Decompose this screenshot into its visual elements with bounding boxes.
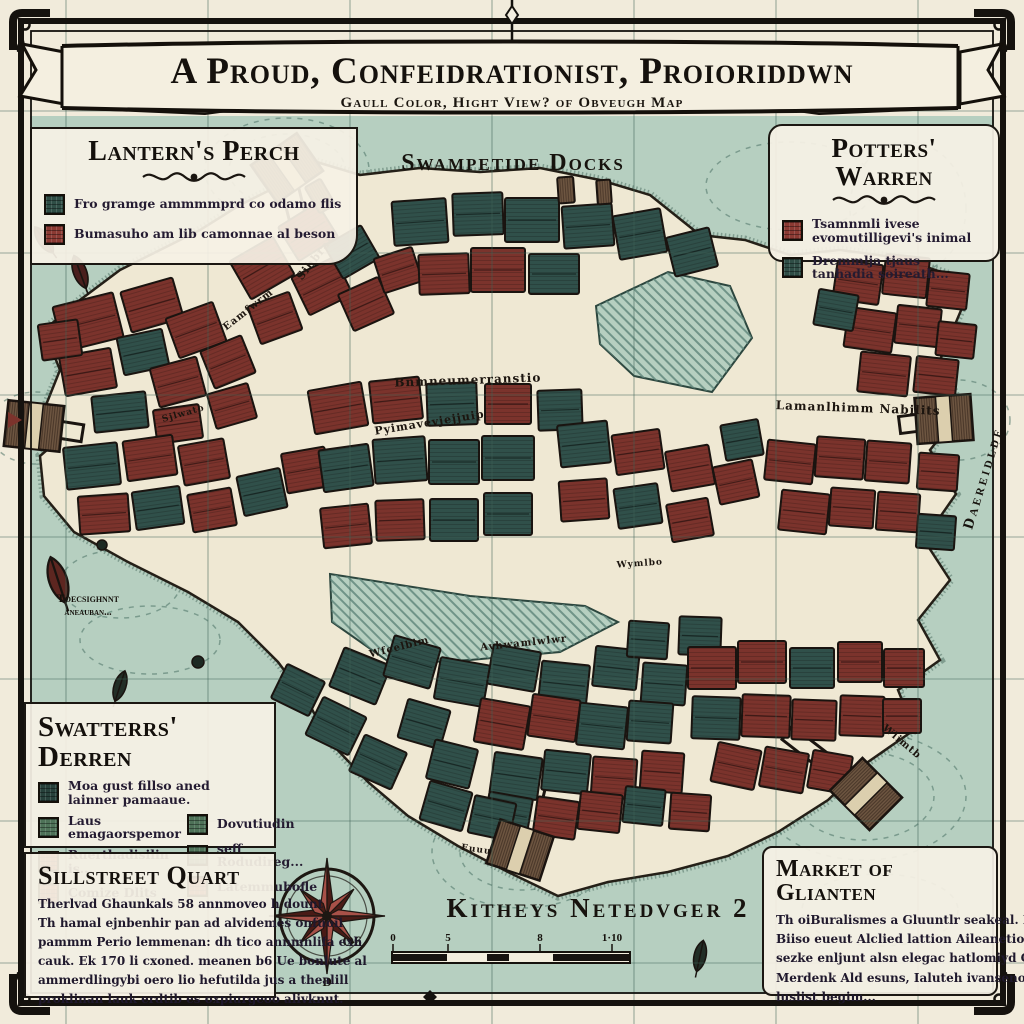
legend-item: Laus emagaorspemor: [38, 814, 181, 842]
legend-swatch-icon: [782, 257, 803, 278]
legend-lanterns-perch: Lantern's Perch Fro gramge ammmmprd co o…: [30, 127, 358, 265]
scroll-ornament-icon: [139, 169, 249, 185]
legend-swatch-icon: [38, 817, 59, 838]
legend-item: Dremmlja tjaus tanhadia soireath...: [782, 254, 986, 282]
note-sillstreet-quart: Sillstreet Quart Therlvad Ghaunkals 58 a…: [24, 852, 276, 998]
legend-item: Dovutiudin: [187, 814, 317, 835]
legend-item: Moa gust fillso aned lainner pamaaue.: [38, 779, 262, 807]
legend-item-label: Dremmlja tjaus tanhadia soireath...: [812, 254, 986, 282]
legend-title: Lantern's Perch: [44, 138, 344, 167]
legend-item: Tsamnmli ivese evomutilligevi's inimal: [782, 217, 986, 245]
legend-swatch-icon: [38, 782, 59, 803]
legend-item-label: Moa gust fillso aned lainner pamaaue.: [68, 779, 262, 807]
legend-swatch-icon: [782, 220, 803, 241]
legend-swatch-icon: [44, 224, 65, 245]
legend-item: Bumasuho am lib camonnae al beson: [44, 224, 344, 245]
legend-title: Potters' Warren: [782, 135, 986, 190]
legend-item-label: Laus emagaorspemor: [68, 814, 181, 842]
note-title: Market of Glianten: [776, 857, 984, 906]
legend-swatch-icon: [44, 194, 65, 215]
legend-item-label: Dovutiudin: [217, 817, 295, 831]
map-subtitle: Gaull Color, Hight View? of Obveugh Map: [70, 95, 954, 112]
note-paragraph: Therlvad Ghaunkals 58 annmoveo h dountTh…: [38, 895, 262, 1010]
note-paragraph: Th oiBuralismes a Gluuntlr seakeal. N bu…: [776, 911, 984, 1007]
legend-title: Swatterrs' Derren: [38, 713, 262, 772]
legend-item-label: Fro gramge ammmmprd co odamo flis: [74, 197, 341, 211]
legend-item: Fro gramge ammmmprd co odamo flis: [44, 194, 344, 215]
legend-swatters-derren: Swatterrs' Derren Moa gust fillso aned l…: [24, 702, 276, 848]
map-title: A Proud, Confeidrationist, Proioriddwn: [70, 50, 954, 93]
legend-item-label: Tsamnmli ivese evomutilligevi's inimal: [812, 217, 986, 245]
note-title: Sillstreet Quart: [38, 863, 262, 890]
legend-item-label: Bumasuho am lib camonnae al beson: [74, 227, 335, 241]
note-market-of-glianten: Market of Glianten Th oiBuralismes a Glu…: [762, 846, 998, 996]
legend-swatch-icon: [187, 814, 208, 835]
scroll-ornament-icon: [829, 192, 939, 208]
legend-potters-warren: Potters' Warren Tsamnmli ivese evomutill…: [768, 124, 1000, 262]
